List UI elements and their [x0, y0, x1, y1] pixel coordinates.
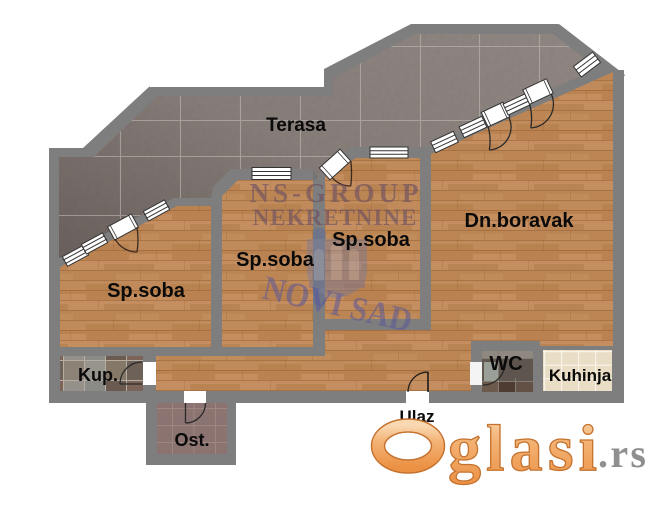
svg-text:Sp.soba: Sp.soba: [332, 229, 411, 251]
svg-text:Ost.: Ost.: [174, 430, 209, 450]
svg-text:Kuhinja: Kuhinja: [549, 366, 612, 385]
svg-text:Sp.soba: Sp.soba: [236, 249, 315, 271]
svg-text:Sp.soba: Sp.soba: [107, 280, 186, 302]
svg-text:.rs: .rs: [598, 431, 646, 476]
svg-text:Terasa: Terasa: [266, 115, 326, 136]
svg-text:Dn.boravak: Dn.boravak: [465, 210, 575, 232]
svg-text:WC: WC: [489, 353, 522, 375]
svg-text:Kup.: Kup.: [78, 365, 118, 385]
svg-text:NEKRETNINE: NEKRETNINE: [253, 205, 418, 230]
svg-text:NS-GROUP: NS-GROUP: [250, 178, 423, 208]
